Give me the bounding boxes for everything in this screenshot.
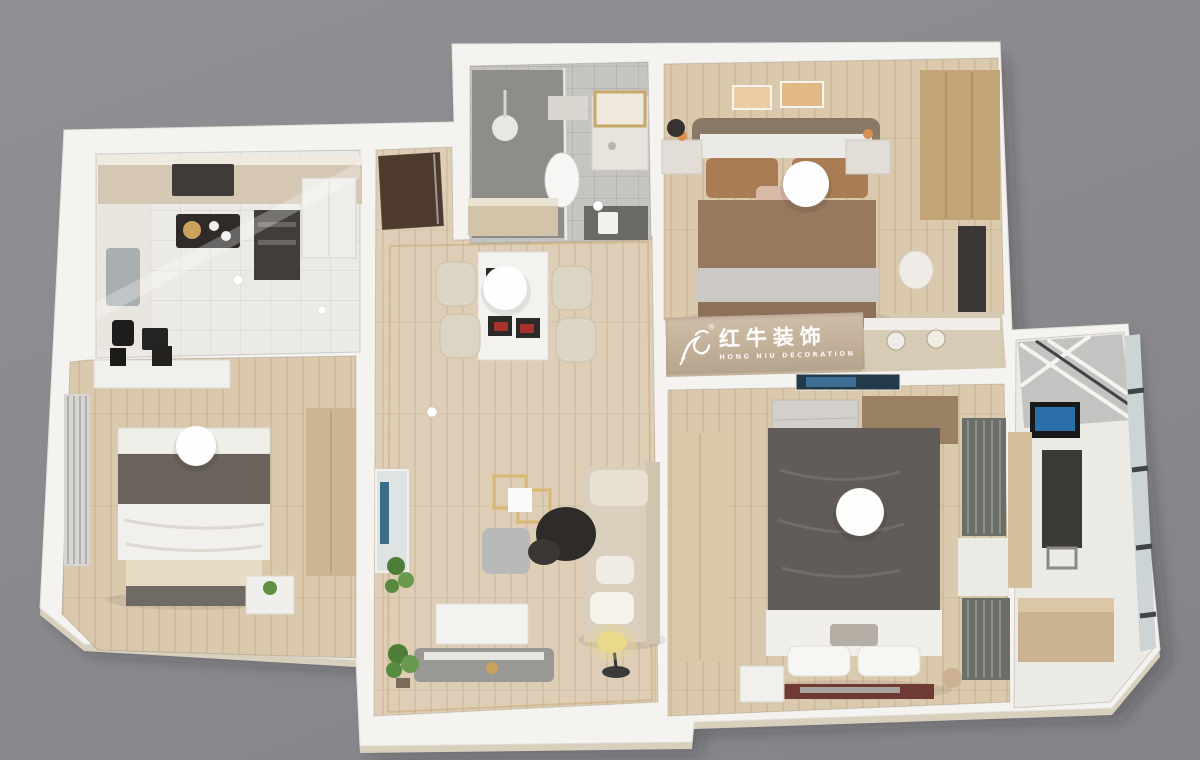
brand-name-chinese: 红牛装饰 xyxy=(719,325,856,350)
sofa-chaise-cushion xyxy=(590,470,648,506)
dark-clothes-pile2 xyxy=(528,539,560,565)
dark-work-table xyxy=(1042,450,1082,548)
dining-chair-4 xyxy=(556,318,596,362)
basin-drain xyxy=(608,142,616,150)
living-lamp-dot xyxy=(427,407,437,417)
nightstand3-left xyxy=(740,666,784,702)
dining-pendant-lamp xyxy=(483,266,527,310)
chandelier-center xyxy=(508,488,532,512)
gold-mirror xyxy=(595,92,645,126)
shower-head xyxy=(492,115,518,141)
balcony-cabinet-top xyxy=(1018,598,1114,612)
render-canvas: ® 红牛装饰 HONG NIU DECORATION xyxy=(0,0,1200,760)
art-blue-streak xyxy=(380,482,389,544)
master-wardrobe xyxy=(920,70,1000,220)
wall-frame-2 xyxy=(781,82,823,107)
basin-bowl-1 xyxy=(887,332,905,350)
basin-counter xyxy=(864,318,1000,330)
washer xyxy=(598,212,618,234)
bed2-base xyxy=(126,586,262,606)
balcony-curtain xyxy=(958,538,1008,596)
master-tv-panel xyxy=(958,226,986,312)
table-lamp-right xyxy=(863,129,873,139)
desk-chair-dark xyxy=(667,119,685,137)
hall-lamp-dot xyxy=(593,201,603,211)
bench-books xyxy=(424,652,544,660)
sofa-pillow2 xyxy=(590,592,634,624)
black-kettle xyxy=(112,320,134,346)
red-dish2 xyxy=(520,324,534,333)
dining-chair-3 xyxy=(552,266,592,310)
nightstand3-lamp xyxy=(942,668,962,688)
oven-shelf2 xyxy=(258,240,296,245)
hongniu-bull-logo-icon: ® xyxy=(678,326,713,365)
bed3-pillow2 xyxy=(858,646,920,676)
sofa-pillow1 xyxy=(596,556,634,584)
brand-name-english: HONG NIU DECORATION xyxy=(719,350,855,360)
wall-frame-1 xyxy=(733,86,771,109)
watermark-text: 红牛装饰 HONG NIU DECORATION xyxy=(719,325,856,360)
shoe-cabinet-top xyxy=(468,198,558,206)
wall-tv-screen xyxy=(806,377,856,387)
bench-gold-deco xyxy=(486,662,498,674)
nightstand-left xyxy=(662,140,702,174)
bed3-pillow1 xyxy=(788,646,850,676)
ottoman xyxy=(482,528,530,574)
towel-shelf xyxy=(548,96,588,120)
nightstand-right xyxy=(846,140,890,174)
black-vase1 xyxy=(110,348,126,366)
striped-wardrobe-bottom xyxy=(962,598,1010,680)
master-bed-body xyxy=(698,200,876,268)
bedroom3-ceiling-lamp xyxy=(836,488,884,536)
master-throw-gray xyxy=(695,268,879,302)
black-vase2 xyxy=(152,346,172,366)
master-ceiling-lamp xyxy=(783,161,829,207)
foot-tray-metal xyxy=(800,687,900,693)
espresso-maker xyxy=(183,221,201,239)
side-cabinet-tan xyxy=(1008,432,1032,588)
monitor-screen xyxy=(1035,407,1075,431)
cooktop xyxy=(172,164,234,196)
sofa-back xyxy=(646,462,660,644)
red-dish1 xyxy=(494,322,508,331)
dining-chair-2 xyxy=(440,314,480,358)
gray-cushion xyxy=(830,624,878,646)
kitchen-backsplash xyxy=(98,156,362,165)
ceiling-lamp-dot2 xyxy=(318,306,326,314)
bed2-bench xyxy=(126,560,262,586)
floorplan-svg xyxy=(0,0,1200,760)
ceiling-lamp-dot xyxy=(233,275,243,285)
bedroom2-ceiling-lamp xyxy=(176,426,216,466)
white-cabinet xyxy=(436,604,528,644)
nightstand-plant xyxy=(263,581,277,595)
vanity-chair xyxy=(899,251,933,289)
watermark-banner: ® 红牛装饰 HONG NIU DECORATION xyxy=(665,312,865,375)
dining-chair-1 xyxy=(436,262,476,306)
cup xyxy=(209,221,219,231)
registered-mark: ® xyxy=(707,322,715,331)
basin-bowl-2 xyxy=(927,330,945,348)
